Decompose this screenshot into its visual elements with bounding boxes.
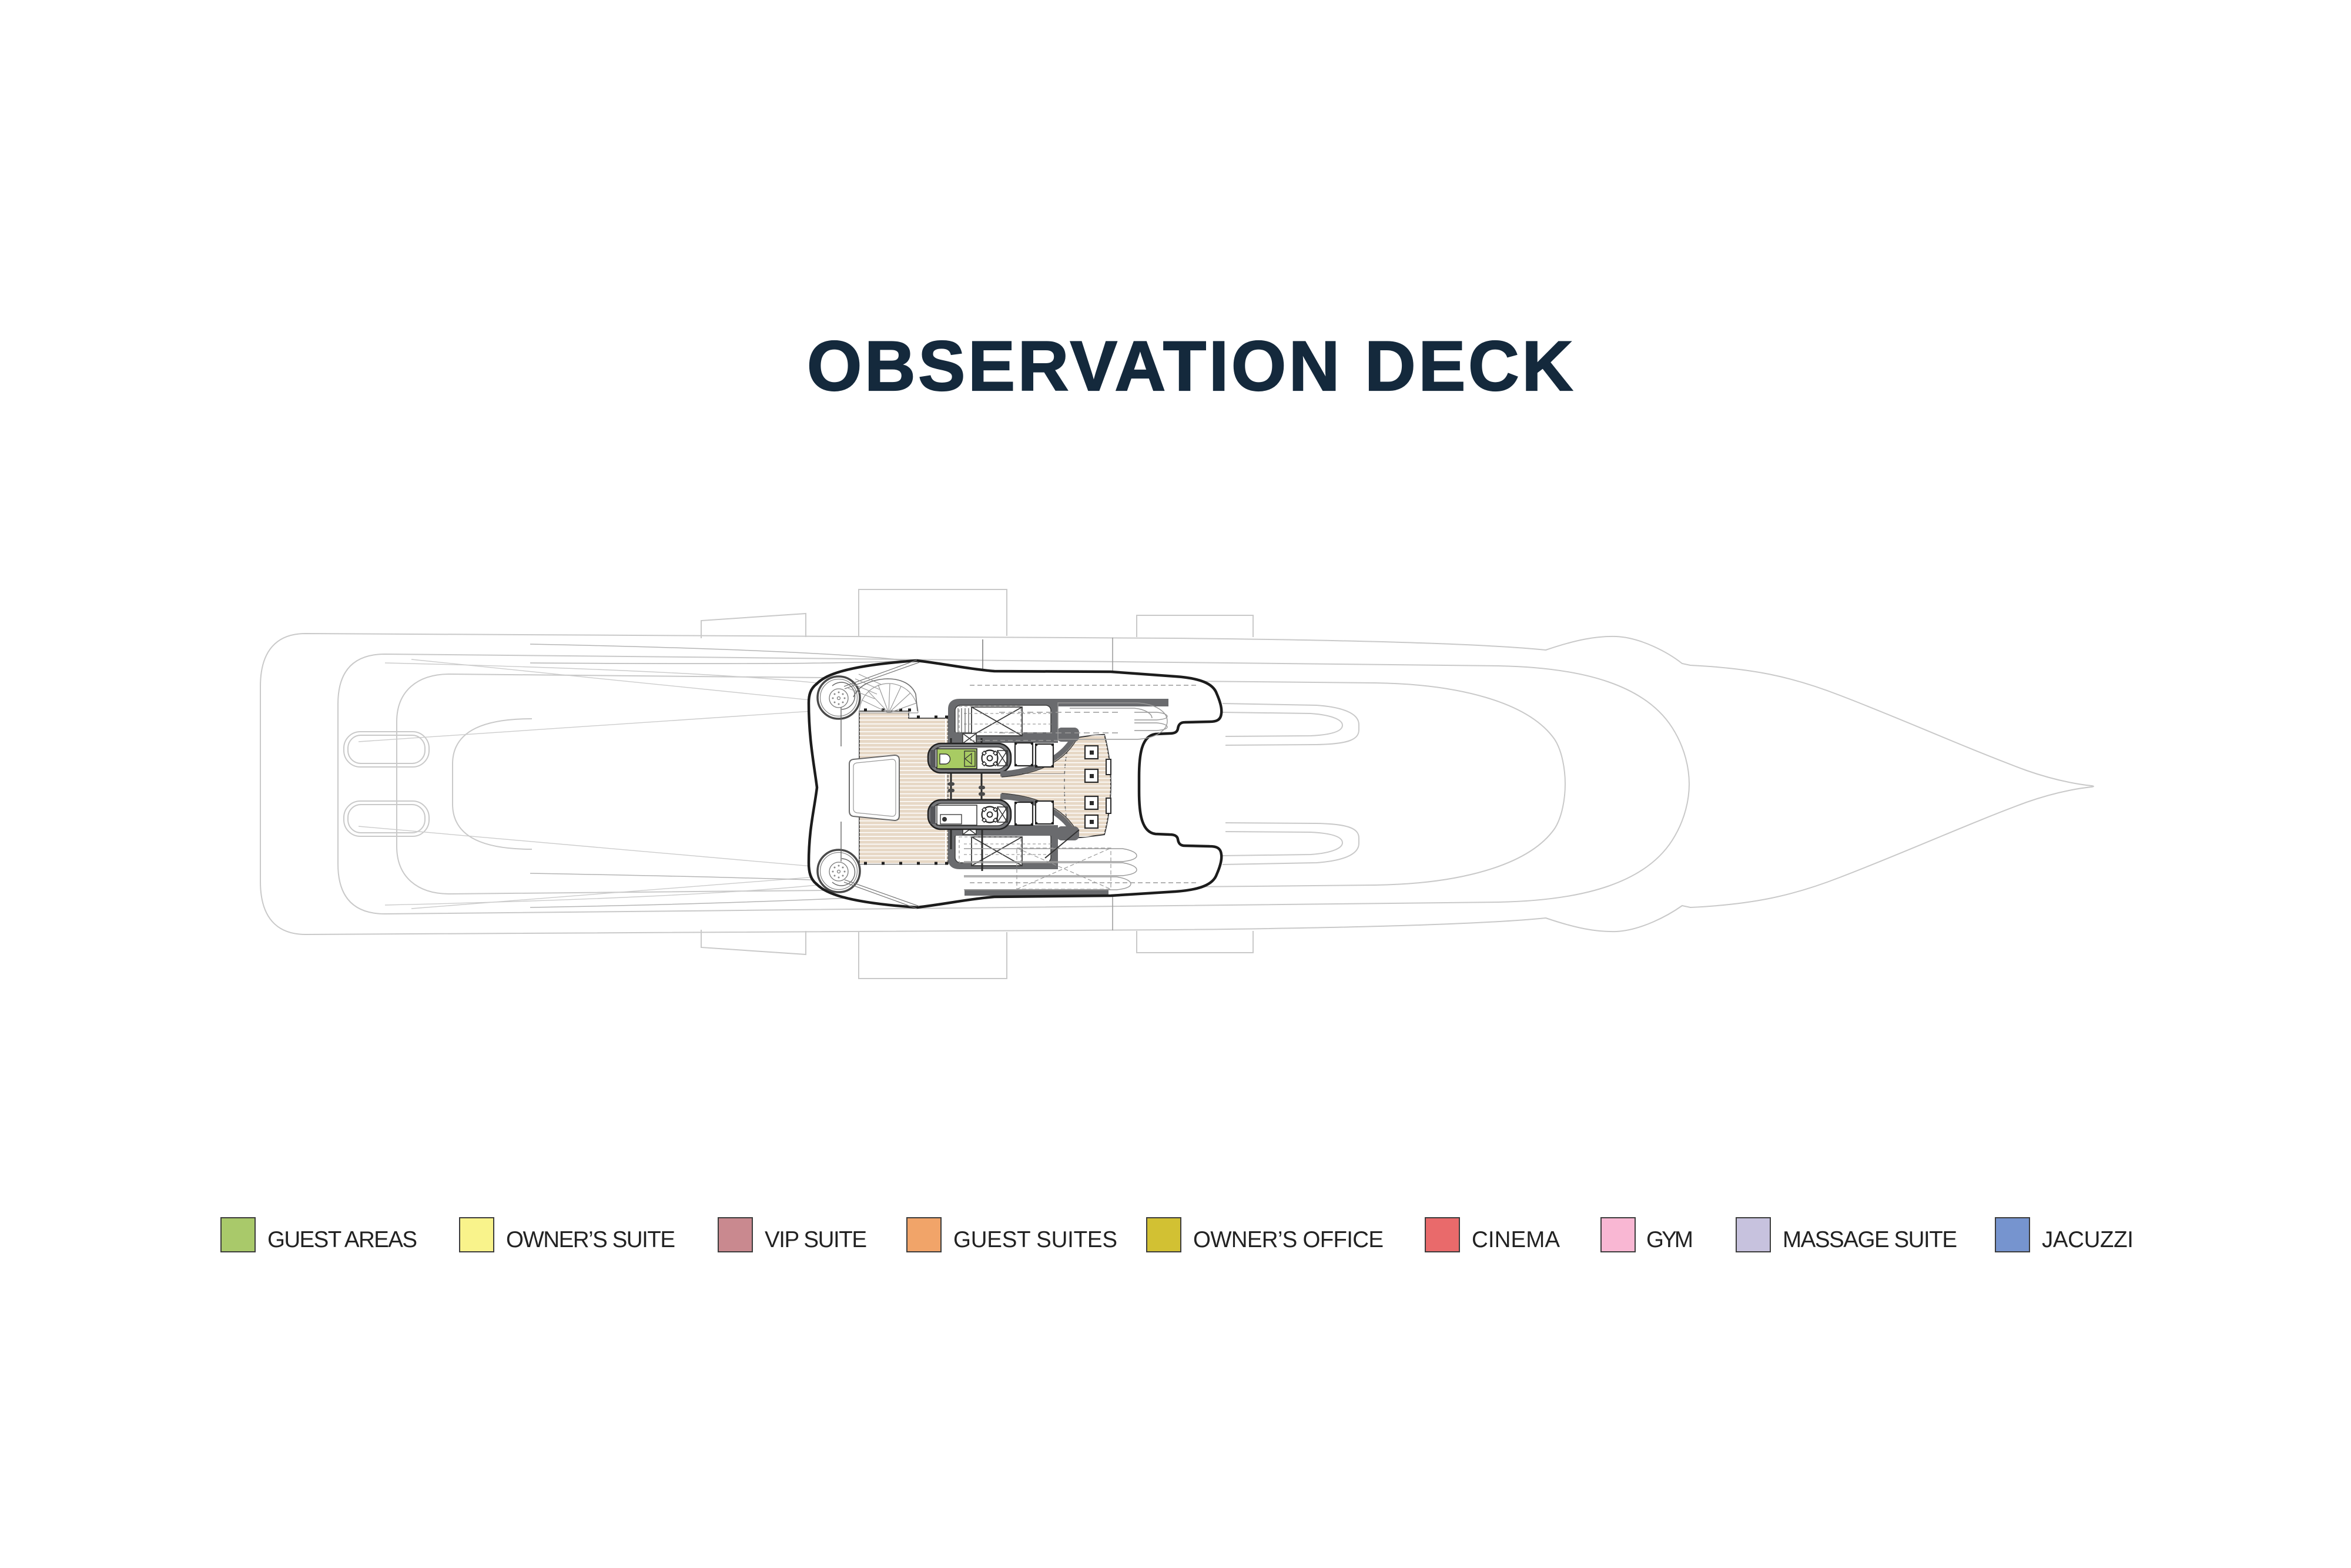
svg-text:OWNER’S SUITE: OWNER’S SUITE	[506, 1227, 675, 1252]
svg-text:GUEST AREAS: GUEST AREAS	[267, 1227, 417, 1252]
svg-text:JACUZZI: JACUZZI	[2042, 1227, 2134, 1252]
svg-text:GYM: GYM	[1646, 1227, 1693, 1252]
svg-text:MASSAGE SUITE: MASSAGE SUITE	[1783, 1227, 1957, 1252]
svg-text:OWNER’S OFFICE: OWNER’S OFFICE	[1193, 1227, 1384, 1252]
svg-text:VIP SUITE: VIP SUITE	[765, 1227, 867, 1252]
svg-text:GUEST SUITES: GUEST SUITES	[953, 1227, 1117, 1252]
svg-text:OBSERVATION DECK: OBSERVATION DECK	[807, 327, 1573, 406]
svg-text:CINEMA: CINEMA	[1472, 1227, 1560, 1252]
